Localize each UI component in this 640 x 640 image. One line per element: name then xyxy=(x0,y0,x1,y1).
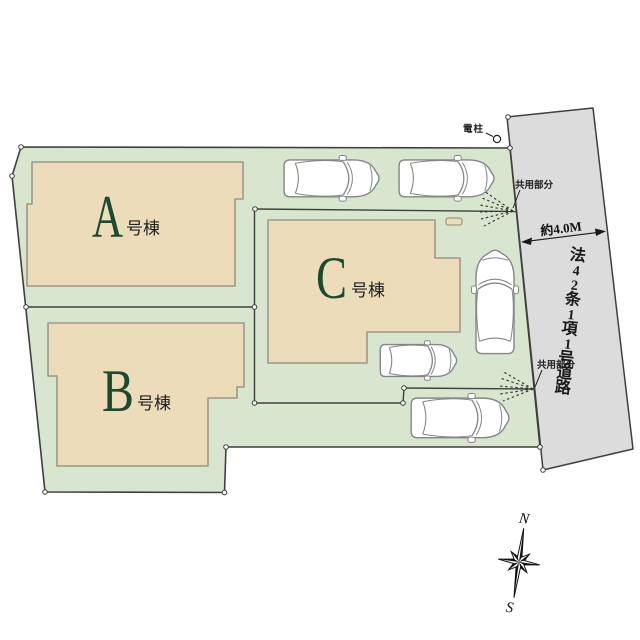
building-c-suffix: 号棟 xyxy=(351,281,385,300)
car-middle xyxy=(380,341,456,380)
divider-drive xyxy=(404,388,534,389)
utility-pole-leader xyxy=(486,133,493,137)
svg-text:法: 法 xyxy=(569,245,587,266)
building-a-label: A xyxy=(92,184,123,250)
car-top-left xyxy=(284,156,379,202)
compass-south-label: S xyxy=(505,600,515,617)
svg-text:項: 項 xyxy=(561,319,580,339)
shared-area-label-1: 共用部分 xyxy=(515,179,554,191)
entrance-step xyxy=(446,218,462,225)
compass-star xyxy=(493,525,544,600)
building-c-label: C xyxy=(316,245,347,311)
compass-north-label: N xyxy=(517,511,531,529)
svg-text:路: 路 xyxy=(554,377,573,398)
utility-pole-label: 電柱 xyxy=(463,123,484,135)
car-right-vertical xyxy=(472,250,519,353)
building-a-suffix: 号棟 xyxy=(126,219,160,238)
building-b-label: B xyxy=(102,358,134,424)
site-plan-page: A 号棟 B 号棟 C 号棟 電柱 共用部分 共用部分 約4.0M 法 4 2 … xyxy=(0,0,640,640)
svg-text:条: 条 xyxy=(563,289,583,310)
utility-pole-icon xyxy=(493,135,500,142)
site-plan-svg: A 号棟 B 号棟 C 号棟 電柱 共用部分 共用部分 約4.0M 法 4 2 … xyxy=(0,0,640,640)
building-b-suffix: 号棟 xyxy=(137,394,171,413)
compass-rose: N S xyxy=(491,509,547,620)
car-bottom xyxy=(411,393,509,442)
car-top-right xyxy=(399,156,494,202)
